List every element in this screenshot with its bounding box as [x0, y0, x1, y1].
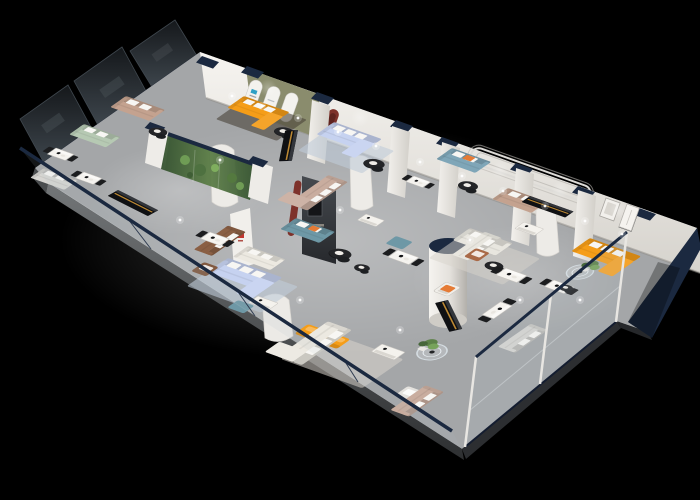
navy-cap	[248, 156, 269, 167]
railing-glass	[20, 148, 462, 449]
white-coffee-table	[357, 214, 384, 227]
navy-cap	[390, 120, 413, 133]
dining-set	[381, 248, 426, 268]
blue-logo	[250, 89, 257, 95]
framed-art	[598, 198, 639, 231]
glass-panel	[20, 85, 92, 163]
rug	[281, 330, 404, 388]
navy-cap	[572, 186, 595, 199]
terrarium	[145, 122, 273, 204]
dining-set	[194, 230, 236, 248]
orange-sectional	[218, 96, 289, 130]
dining-set	[489, 266, 534, 286]
media-console	[435, 300, 462, 332]
cylinder-column	[429, 238, 467, 328]
white-sofa	[453, 228, 513, 255]
cream-sofa	[233, 246, 286, 270]
curved-partition	[262, 294, 293, 342]
glass-partitions	[465, 232, 627, 447]
white-coffee-table	[249, 296, 279, 310]
slab-edges	[32, 168, 652, 460]
pillar	[573, 190, 596, 262]
teal-ottoman	[227, 300, 254, 313]
furniture	[30, 96, 580, 417]
rug	[298, 128, 394, 173]
partition-top-rail	[476, 232, 627, 357]
navy-cap	[145, 122, 166, 133]
grey-sofa	[498, 324, 548, 353]
railing-top-rail	[20, 148, 452, 431]
tan-sofa	[110, 96, 165, 121]
black-coffee-table	[453, 179, 485, 194]
curved-partition	[210, 144, 238, 207]
orange-pillow	[462, 155, 476, 162]
navy-cap	[311, 92, 334, 105]
brown-sofa	[194, 226, 246, 256]
pillar	[387, 126, 410, 198]
white-armchair	[394, 386, 424, 401]
floor-light	[60, 120, 600, 360]
arch-wall-olive	[246, 68, 324, 140]
navy-cap	[196, 56, 219, 69]
pillar	[307, 100, 330, 164]
leather-armchair	[464, 248, 490, 262]
glass-base-rail	[40, 55, 198, 166]
white-sofa	[452, 232, 502, 261]
steel-blue-sofa	[436, 148, 491, 173]
leather-armchair	[191, 262, 219, 276]
logo-pillar	[230, 208, 254, 270]
terrarium-glass	[161, 134, 256, 200]
media-console	[108, 190, 159, 216]
feature-wall	[287, 176, 336, 264]
navy-exterior-wall	[628, 228, 700, 338]
dining-set	[69, 170, 107, 187]
maroon-panel	[287, 180, 302, 236]
terrarium-frame	[168, 134, 256, 165]
interior-partitions	[210, 100, 596, 342]
rug	[216, 98, 307, 141]
pillar	[437, 142, 460, 218]
floorplan-render	[0, 0, 700, 500]
display-screen	[308, 196, 322, 216]
media-console	[521, 196, 573, 218]
terrarium-pillar	[248, 160, 273, 204]
arched-niches	[242, 78, 300, 123]
black-coffee-table	[358, 156, 392, 173]
dining-set	[41, 146, 79, 163]
dining-set	[401, 174, 436, 189]
showroom-svg	[0, 0, 700, 500]
right-lounge	[556, 204, 700, 338]
front-glass-railing	[20, 148, 462, 449]
cream-sectional	[265, 317, 352, 365]
floor-light	[90, 145, 270, 235]
navy-cap	[436, 137, 459, 150]
teal-ottoman	[385, 236, 413, 250]
red-logo	[237, 233, 244, 238]
accent-armchair	[433, 282, 461, 296]
wardrobe	[619, 204, 639, 231]
rug	[187, 260, 298, 313]
glass-panel	[74, 47, 146, 125]
dining-set	[476, 298, 518, 323]
floor-light	[410, 225, 630, 335]
terrarium-pillar	[145, 126, 170, 170]
orange-pillow	[307, 225, 320, 231]
sage-sofa	[69, 124, 120, 147]
periwinkle-sectional	[307, 122, 382, 158]
black-oval-table	[350, 262, 375, 274]
floor	[35, 52, 697, 449]
black-coffee-table	[269, 125, 301, 140]
downlights	[176, 92, 626, 334]
rugs	[187, 98, 540, 388]
cylinder-cap	[429, 238, 467, 254]
stadium-molding	[465, 142, 597, 207]
plant	[576, 259, 605, 274]
black-chair	[556, 283, 578, 294]
back-wall	[196, 52, 700, 274]
glass-round-table	[411, 341, 453, 363]
orange-daybed	[294, 324, 350, 349]
periwinkle-sectional	[197, 258, 282, 299]
glass-panel	[130, 20, 197, 87]
grey-sofa	[30, 168, 78, 190]
navy-cap	[633, 208, 656, 221]
orange-sectional	[561, 238, 641, 277]
teal-sofa	[280, 218, 335, 243]
tan-sofa	[492, 188, 547, 213]
back-wall-face	[200, 52, 700, 274]
navy-cap	[510, 163, 533, 176]
partition-glass	[465, 232, 627, 447]
curved-partition	[350, 155, 373, 210]
navy-cap	[241, 66, 264, 79]
blush-sofa	[390, 385, 444, 416]
dining-set	[538, 278, 580, 296]
curved-partition	[536, 207, 559, 256]
white-coffee-table	[371, 344, 405, 360]
media-console	[279, 130, 298, 161]
dark-glass-wall	[20, 20, 198, 166]
black-background	[0, 0, 700, 500]
black-coffee-table	[480, 259, 510, 274]
pillar	[511, 168, 534, 246]
plant	[412, 337, 444, 354]
rug	[429, 232, 540, 285]
black-oval-table	[323, 246, 359, 264]
maroon-arch-niche	[321, 108, 340, 136]
glass-round-table	[561, 262, 599, 282]
white-coffee-table	[515, 222, 544, 236]
black-coffee-table	[144, 125, 174, 139]
blush-sectional	[277, 171, 348, 210]
